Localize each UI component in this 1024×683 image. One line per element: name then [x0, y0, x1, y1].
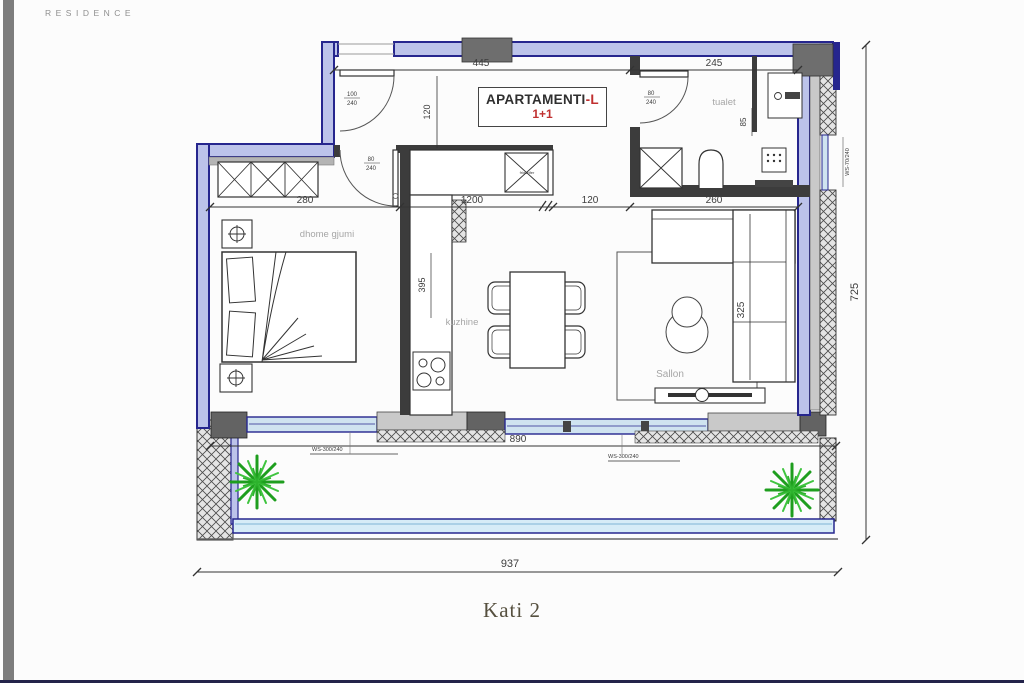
- living-furniture: [617, 210, 795, 403]
- coffee-table-small: [672, 297, 702, 327]
- toilet-divider-wall: [752, 56, 757, 132]
- bedroom-window: [247, 417, 377, 432]
- step-wall: [197, 144, 334, 157]
- hall-left-wall: [322, 42, 334, 157]
- west-wall: [197, 144, 209, 428]
- living-label: Sallon: [656, 369, 684, 380]
- counter-edge: [755, 180, 793, 187]
- floor-caption: Kati 2: [0, 598, 1024, 623]
- entry-door-height: 240: [347, 101, 358, 107]
- floorplan-page: { "brand": "RESIDENCE", "caption": "Kati…: [0, 0, 1024, 683]
- apartment-name-text: APARTAMENTI: [486, 92, 586, 107]
- dining-table: [510, 272, 565, 368]
- toilet-door-width: 80: [648, 91, 655, 97]
- window-mullion: [563, 421, 571, 432]
- side-window: [822, 135, 828, 190]
- parapet-hatch: [635, 431, 818, 443]
- dim-395: 395: [417, 277, 427, 292]
- tv-panel: [668, 393, 752, 397]
- dim-325: 325: [736, 301, 747, 318]
- pillow: [226, 257, 255, 303]
- column-block: [211, 412, 247, 438]
- toilet-left-wall: [630, 127, 640, 190]
- bedroom-label: dhome gjumi: [300, 229, 354, 240]
- plant-right: [766, 464, 818, 516]
- dim-120-entry: 120: [422, 104, 432, 119]
- plant-left: [231, 456, 283, 508]
- toilet-label: tualet: [712, 97, 736, 108]
- side-window-label: WS-70/240: [845, 148, 851, 176]
- toilet-furniture: [640, 73, 802, 188]
- balcony-glass-railing: [233, 519, 834, 533]
- dim-937: 937: [501, 558, 519, 570]
- toilet-left-wall: [630, 56, 640, 75]
- balcony-right-wall-hatch: [820, 438, 836, 521]
- entry-door-leaf: [340, 70, 394, 76]
- dim-245: 245: [706, 58, 723, 69]
- bedroom-window-label: WS-300/240: [312, 447, 343, 453]
- top-wall: [394, 42, 833, 56]
- edge-hatch: [820, 190, 836, 415]
- slab-strip: [708, 413, 800, 431]
- dim-260: 260: [706, 195, 723, 206]
- apartment-name: APARTAMENTI-L: [486, 92, 599, 108]
- apartment-title-block: APARTAMENTI-L 1+1: [478, 87, 607, 127]
- dim-890: 890: [510, 434, 527, 445]
- fridge-label: frigorifer: [520, 170, 535, 175]
- column-block: [793, 44, 833, 76]
- wc: [699, 150, 723, 188]
- dim-280: 280: [297, 195, 314, 206]
- column-block: [467, 412, 505, 431]
- faucet: [785, 92, 800, 99]
- living-window-label: WS-300/240: [608, 454, 639, 460]
- window-mullion: [641, 421, 649, 432]
- dim-1200: 1200: [461, 195, 484, 206]
- parapet-hatch: [377, 430, 505, 442]
- pillow: [226, 311, 255, 357]
- tv-stand-knob: [696, 389, 709, 402]
- apartment-type: 1+1: [532, 108, 552, 122]
- slab-strip: [810, 76, 820, 410]
- toilet-door-leaf: [640, 71, 688, 77]
- apartment-suffix: -L: [586, 92, 599, 107]
- bedroom-door-width: 80: [368, 157, 375, 163]
- kitchen-label: kuzhine: [446, 317, 479, 328]
- dim-725: 725: [849, 283, 861, 301]
- dim-85: 85: [739, 117, 748, 126]
- dining-furniture: [488, 272, 585, 368]
- dishwasher: [452, 200, 466, 242]
- toilet-door-height: 240: [646, 100, 657, 106]
- wall-stub: [334, 145, 340, 157]
- bedroom-kitchen-wall: [400, 153, 410, 415]
- dim-445: 445: [473, 58, 490, 69]
- corner-wall: [833, 42, 840, 90]
- dim-120-corridor: 120: [582, 195, 599, 206]
- bedroom-door-height: 240: [366, 166, 377, 172]
- bedroom-furniture: [218, 162, 356, 392]
- entry-door-width: 100: [347, 92, 358, 98]
